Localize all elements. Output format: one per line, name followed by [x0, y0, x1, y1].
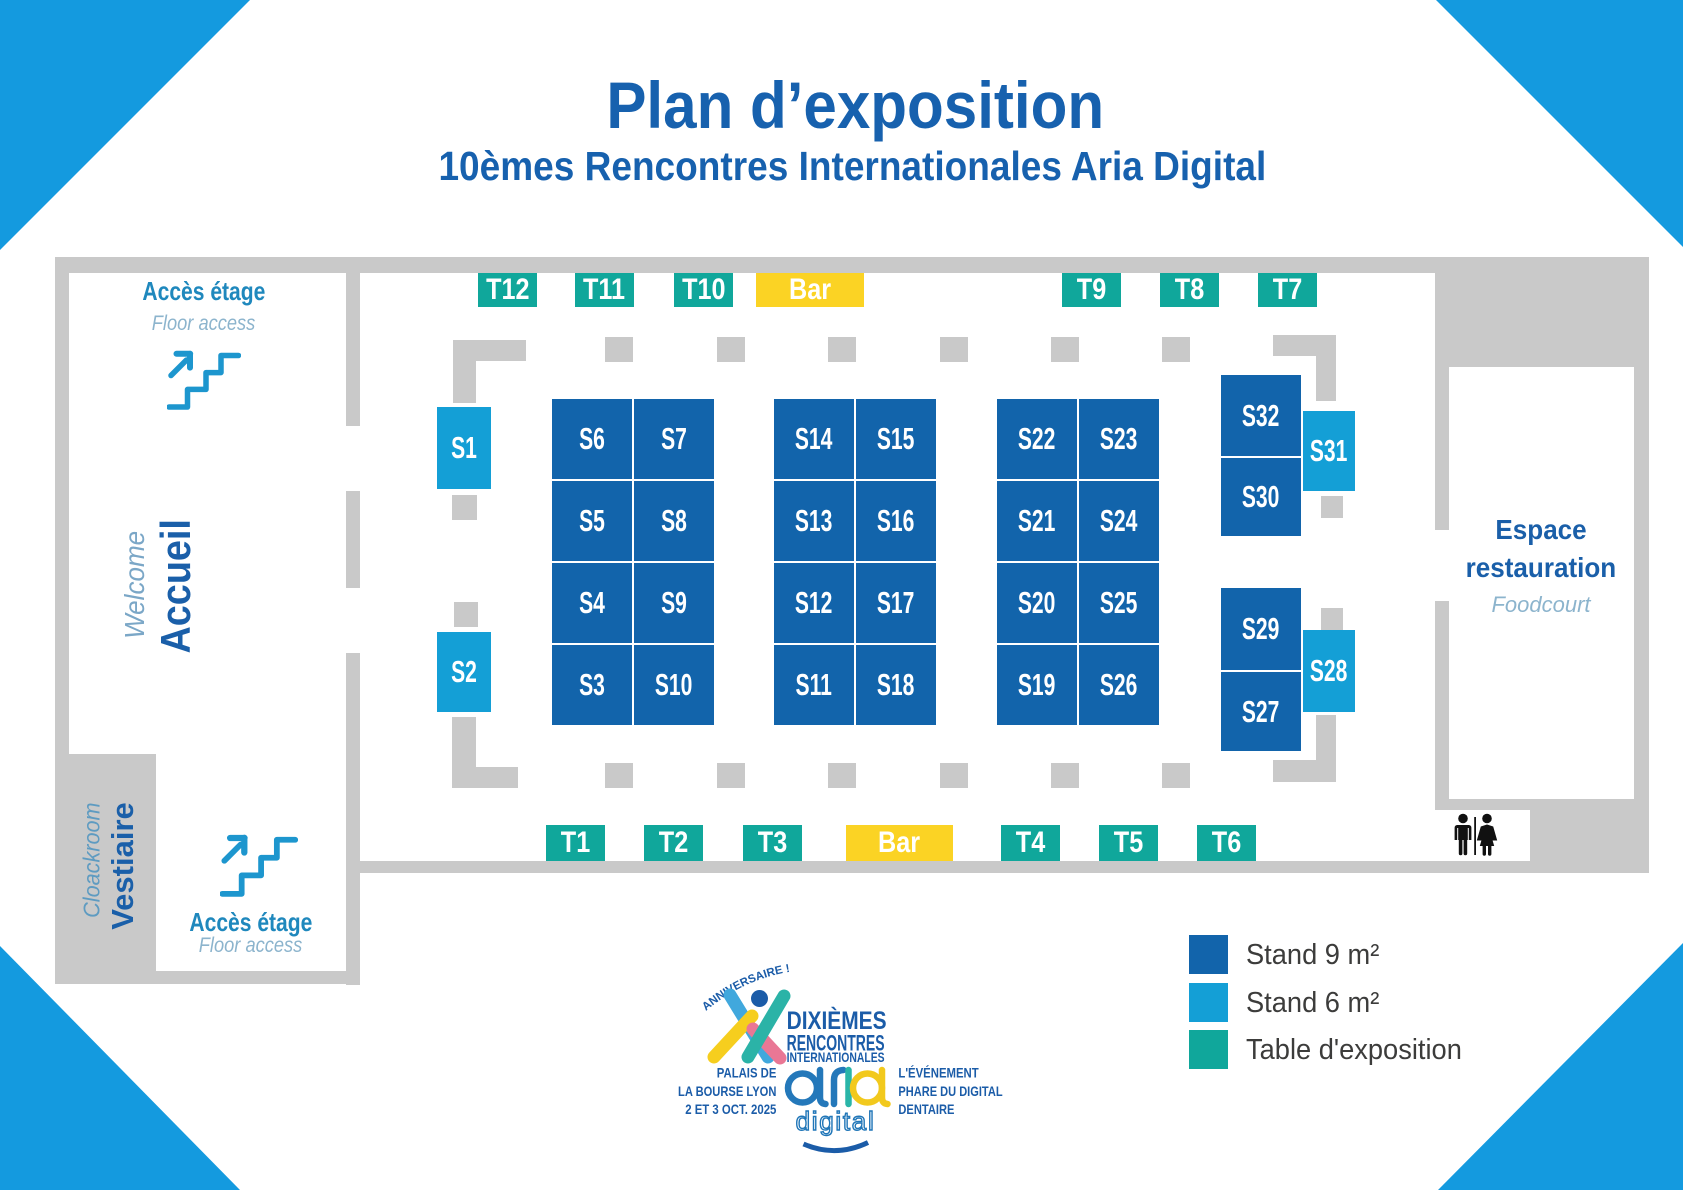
svg-text:digital: digital: [796, 1106, 876, 1136]
svg-text:PALAIS DE: PALAIS DE: [717, 1065, 777, 1081]
svg-text:L'ÉVÉNEMENT: L'ÉVÉNEMENT: [898, 1065, 979, 1081]
svg-text:2 ET 3 OCT. 2025: 2 ET 3 OCT. 2025: [685, 1101, 776, 1117]
svg-text:DENTAIRE: DENTAIRE: [898, 1101, 954, 1117]
svg-text:INTERNATIONALES: INTERNATIONALES: [787, 1049, 885, 1065]
svg-text:PHARE DU DIGITAL: PHARE DU DIGITAL: [898, 1083, 1003, 1099]
svg-text:LA BOURSE LYON: LA BOURSE LYON: [678, 1083, 776, 1099]
